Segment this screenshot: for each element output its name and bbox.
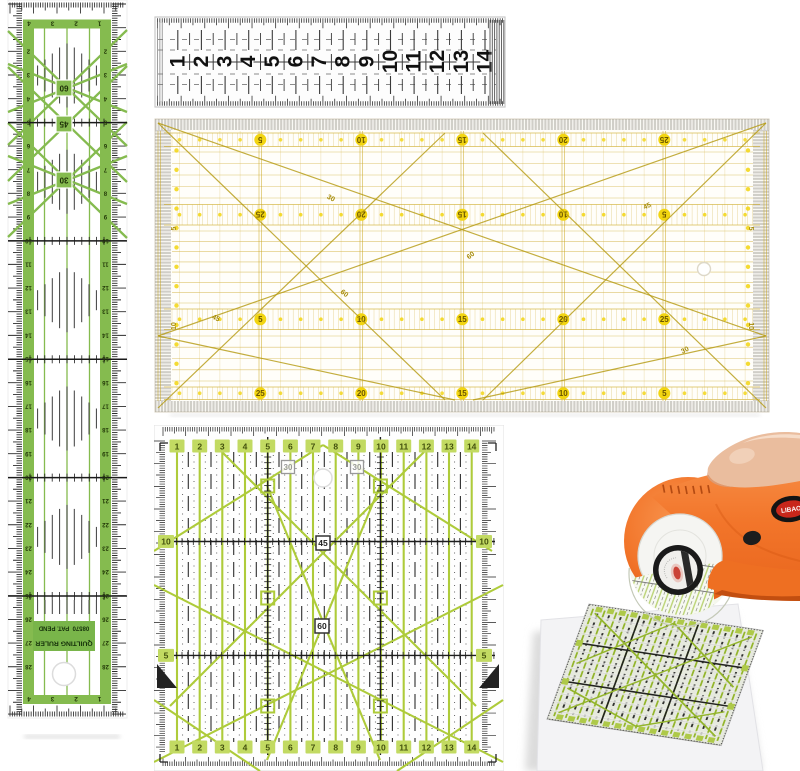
svg-text:6: 6 (284, 56, 307, 68)
svg-text:18: 18 (102, 426, 109, 432)
svg-text:10: 10 (379, 50, 402, 73)
svg-text:1: 1 (175, 743, 180, 753)
svg-text:15: 15 (458, 315, 467, 324)
svg-text:19: 19 (25, 450, 32, 456)
svg-text:11: 11 (399, 743, 408, 753)
svg-text:2: 2 (74, 20, 78, 27)
svg-text:45: 45 (318, 538, 328, 548)
svg-text:12: 12 (426, 50, 449, 73)
svg-text:6: 6 (288, 743, 293, 753)
svg-text:5: 5 (258, 315, 263, 324)
svg-text:15: 15 (102, 355, 109, 361)
svg-text:20: 20 (357, 389, 366, 398)
svg-text:1: 1 (166, 55, 189, 67)
svg-text:3: 3 (214, 56, 237, 68)
svg-text:25: 25 (102, 592, 109, 598)
svg-text:5: 5 (261, 55, 284, 67)
svg-text:25: 25 (255, 210, 264, 219)
svg-text:15: 15 (25, 355, 32, 361)
svg-text:16: 16 (102, 379, 109, 385)
svg-text:22: 22 (102, 521, 109, 527)
svg-text:10: 10 (161, 537, 171, 547)
svg-text:4: 4 (243, 442, 248, 452)
svg-text:20: 20 (558, 135, 567, 144)
svg-text:5: 5 (164, 651, 169, 661)
svg-text:1: 1 (97, 20, 101, 27)
svg-text:3: 3 (220, 743, 225, 753)
svg-text:18: 18 (25, 426, 32, 432)
svg-text:10: 10 (747, 322, 754, 330)
svg-text:25: 25 (25, 592, 32, 598)
svg-text:25: 25 (660, 315, 669, 324)
svg-text:16: 16 (25, 379, 32, 385)
svg-text:2: 2 (197, 743, 202, 753)
svg-text:25: 25 (659, 135, 668, 144)
svg-text:9: 9 (356, 442, 361, 452)
svg-text:13: 13 (450, 50, 473, 73)
svg-text:24: 24 (25, 568, 32, 574)
svg-text:8: 8 (333, 743, 338, 753)
svg-text:20: 20 (102, 474, 109, 480)
svg-text:8: 8 (332, 55, 355, 67)
svg-text:5: 5 (171, 227, 178, 231)
svg-text:10: 10 (559, 389, 568, 398)
svg-text:10: 10 (102, 237, 109, 243)
svg-text:21: 21 (25, 497, 32, 503)
svg-text:12: 12 (102, 284, 109, 290)
svg-text:23: 23 (25, 544, 32, 550)
svg-text:12: 12 (25, 284, 32, 290)
svg-text:14: 14 (467, 442, 477, 452)
svg-text:10: 10 (376, 743, 386, 753)
svg-text:8: 8 (333, 442, 338, 452)
svg-text:5: 5 (662, 210, 667, 219)
svg-text:21: 21 (102, 497, 109, 503)
svg-text:15: 15 (458, 389, 467, 398)
svg-text:12: 12 (422, 743, 432, 753)
svg-text:14: 14 (25, 331, 32, 337)
svg-text:08570 PAT. PEND: 08570 PAT. PEND (38, 625, 89, 631)
svg-text:10: 10 (25, 237, 32, 243)
svg-text:30: 30 (284, 463, 293, 472)
svg-text:4: 4 (27, 20, 31, 27)
svg-text:4: 4 (243, 743, 248, 753)
svg-text:1: 1 (97, 695, 101, 702)
svg-text:9: 9 (355, 56, 378, 68)
svg-text:26: 26 (102, 615, 109, 621)
svg-text:2: 2 (74, 695, 78, 702)
svg-text:10: 10 (356, 135, 365, 144)
svg-text:4: 4 (237, 55, 260, 67)
svg-text:13: 13 (444, 743, 454, 753)
svg-text:5: 5 (662, 389, 667, 398)
svg-text:5: 5 (482, 651, 487, 661)
svg-text:15: 15 (457, 135, 466, 144)
svg-text:27: 27 (102, 639, 109, 645)
svg-text:19: 19 (102, 450, 109, 456)
svg-text:45: 45 (59, 120, 68, 129)
svg-text:28: 28 (102, 663, 109, 669)
svg-text:3: 3 (50, 20, 54, 27)
svg-text:11: 11 (403, 50, 426, 73)
svg-text:4: 4 (27, 695, 31, 702)
svg-text:11: 11 (102, 260, 109, 266)
svg-text:60: 60 (59, 84, 68, 93)
svg-text:3: 3 (50, 695, 54, 702)
svg-text:2: 2 (197, 442, 202, 452)
svg-text:10: 10 (479, 537, 489, 547)
svg-text:QUILTING RULER: QUILTING RULER (35, 640, 92, 647)
svg-text:14: 14 (467, 743, 477, 753)
svg-text:12: 12 (422, 442, 432, 452)
svg-text:30: 30 (59, 176, 68, 185)
svg-text:9: 9 (356, 743, 361, 753)
svg-text:11: 11 (399, 442, 408, 452)
svg-text:5: 5 (258, 135, 263, 144)
svg-text:13: 13 (102, 308, 109, 314)
svg-text:11: 11 (25, 260, 32, 266)
svg-text:14: 14 (473, 49, 496, 73)
svg-text:13: 13 (25, 308, 32, 314)
svg-text:5: 5 (265, 442, 270, 452)
svg-text:10: 10 (376, 442, 386, 452)
svg-text:7: 7 (311, 442, 316, 452)
svg-text:5: 5 (265, 743, 270, 753)
svg-text:1: 1 (175, 442, 180, 452)
svg-text:2: 2 (190, 56, 213, 68)
svg-text:24: 24 (102, 568, 109, 574)
svg-text:60: 60 (317, 621, 327, 631)
svg-text:27: 27 (25, 639, 32, 645)
svg-text:3: 3 (220, 442, 225, 452)
svg-text:7: 7 (308, 56, 331, 68)
svg-text:20: 20 (25, 474, 32, 480)
svg-text:17: 17 (25, 402, 32, 408)
svg-text:28: 28 (25, 663, 32, 669)
svg-text:6: 6 (288, 442, 293, 452)
svg-text:17: 17 (102, 402, 109, 408)
svg-text:14: 14 (102, 331, 109, 337)
svg-text:13: 13 (444, 442, 454, 452)
svg-text:26: 26 (25, 615, 32, 621)
svg-text:25: 25 (256, 389, 265, 398)
svg-text:22: 22 (25, 521, 32, 527)
svg-text:30: 30 (353, 463, 362, 472)
svg-text:20: 20 (559, 315, 568, 324)
svg-text:5: 5 (747, 227, 754, 231)
svg-text:15: 15 (457, 210, 466, 219)
svg-text:23: 23 (102, 544, 109, 550)
svg-text:7: 7 (311, 743, 316, 753)
